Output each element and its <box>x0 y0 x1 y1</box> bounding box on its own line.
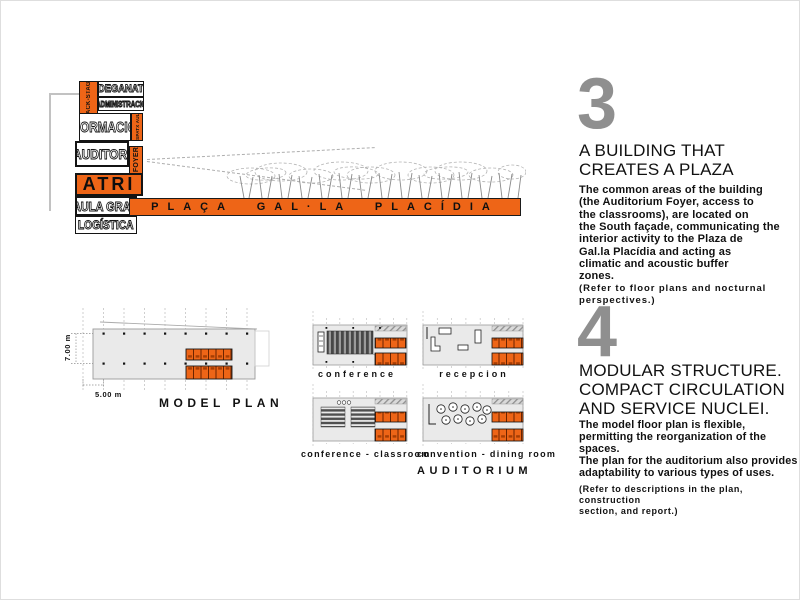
program-box-administracio: ADMINISTRACIÓ <box>98 97 144 111</box>
program-label-deganat: DEGANAT <box>98 83 144 95</box>
program-box-atri: ATRI <box>75 173 143 196</box>
program-box-backstage: BACK-STAGE <box>79 81 98 115</box>
auditorium-group-label: AUDITORIUM <box>417 465 531 477</box>
model-plan-dim-vertical: 7.00 m <box>63 334 72 361</box>
plan-conference-drawing <box>301 311 413 373</box>
program-box-despatx-aules: DESPATX AULES <box>131 113 143 141</box>
program-bracket-line-h <box>49 93 81 95</box>
plan-label-recepcion: recepcion <box>417 369 531 379</box>
program-label-foyer: FOYER <box>133 147 140 172</box>
plan-label-conference-classroom: conference - classroom <box>301 449 413 459</box>
section-3-heading: A BUILDING THAT CREATES A PLAZA <box>579 141 800 179</box>
program-label-atri: ATRI <box>83 174 136 195</box>
section-3-body: The common areas of the building (the Au… <box>579 184 800 283</box>
section-3-number: 3 <box>577 68 615 140</box>
program-label-aula-gran: AULA GRAN <box>75 199 137 214</box>
program-label-auditori: AUDITORI <box>75 146 129 162</box>
presentation-board: BACK-STAGE DEGANAT ADMINISTRACIÓ FORMACI… <box>0 0 800 600</box>
plan-label-convention-dining: convention - dining room <box>417 449 531 459</box>
program-box-logistica: LOGÍSTICA <box>75 216 137 234</box>
program-label-logistica: LOGÍSTICA <box>78 218 134 232</box>
plan-conference-classroom-drawing <box>301 384 413 448</box>
program-label-administracio: ADMINISTRACIÓ <box>98 100 144 109</box>
plan-recepcion-drawing <box>417 311 531 373</box>
plaza-bar: PLAÇA GAL·LA PLACÍDIA <box>129 198 521 216</box>
program-label-formacio: FORMACIÓ <box>79 119 131 136</box>
program-box-foyer: FOYER <box>129 146 143 174</box>
section-4-heading: MODULAR STRUCTURE. COMPACT CIRCULATION A… <box>579 361 800 419</box>
program-label-backstage: BACK-STAGE <box>86 81 92 115</box>
program-box-formacio: FORMACIÓ <box>79 113 131 141</box>
section-4-number: 4 <box>577 296 615 368</box>
model-plan-dim-horizontal: 5.00 m <box>95 390 122 399</box>
plan-label-conference: conference <box>301 369 413 379</box>
model-plan-label: MODEL PLAN <box>159 396 269 410</box>
section-4-note: (Refer to descriptions in the plan, cons… <box>579 484 800 517</box>
section-4-body: The model floor plan is flexible, permit… <box>579 419 800 479</box>
program-box-aula-gran: AULA GRAN <box>75 196 137 216</box>
program-label-despatx-aules: DESPATX AULES <box>135 113 140 141</box>
program-box-deganat: DEGANAT <box>98 81 144 97</box>
plan-convention-dining-drawing <box>417 384 531 448</box>
program-box-auditori: AUDITORI <box>75 141 129 167</box>
program-bracket-line-v <box>49 93 51 211</box>
trees-sketch <box>206 156 526 198</box>
